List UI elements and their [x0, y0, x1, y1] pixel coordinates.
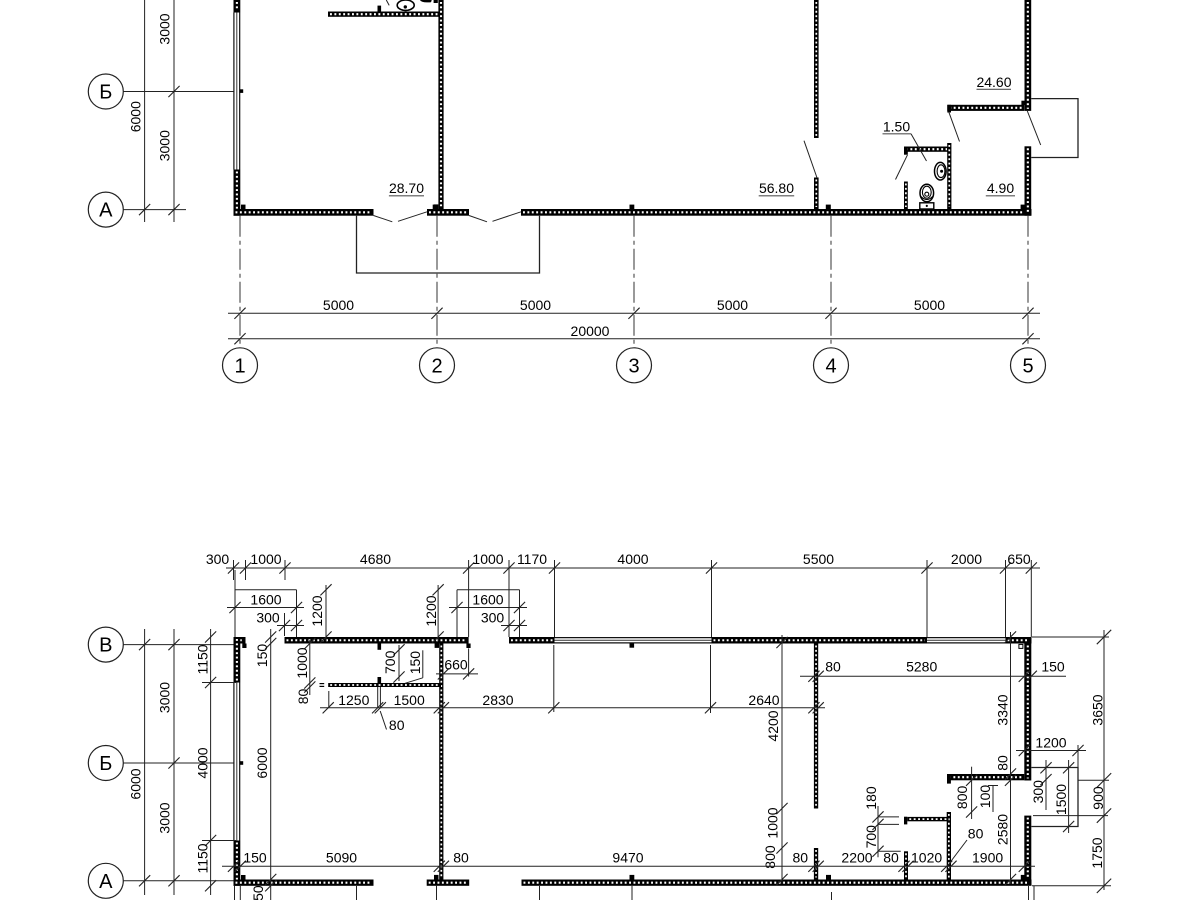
- svg-text:3: 3: [628, 355, 639, 377]
- svg-text:1600: 1600: [472, 592, 503, 608]
- svg-text:4.90: 4.90: [987, 180, 1014, 196]
- svg-text:1000: 1000: [294, 647, 310, 678]
- svg-text:1200: 1200: [309, 595, 325, 626]
- svg-text:2000: 2000: [951, 551, 982, 567]
- svg-text:180: 180: [863, 786, 879, 810]
- svg-text:5090: 5090: [326, 850, 357, 866]
- svg-text:4200: 4200: [765, 710, 781, 741]
- svg-text:1150: 1150: [195, 843, 211, 873]
- svg-text:9470: 9470: [612, 850, 643, 866]
- svg-text:80: 80: [793, 850, 809, 866]
- svg-text:300: 300: [206, 551, 230, 567]
- svg-text:1500: 1500: [1053, 784, 1069, 815]
- svg-text:6000: 6000: [128, 768, 144, 799]
- svg-text:1250: 1250: [338, 692, 369, 708]
- svg-text:300: 300: [481, 610, 505, 626]
- svg-text:150: 150: [243, 850, 267, 866]
- svg-text:300: 300: [1030, 780, 1046, 804]
- svg-text:1600: 1600: [250, 592, 281, 608]
- svg-text:1150: 1150: [195, 644, 211, 674]
- svg-text:1170: 1170: [517, 551, 547, 567]
- svg-text:5500: 5500: [803, 551, 834, 567]
- svg-text:100: 100: [977, 785, 993, 809]
- svg-text:1: 1: [234, 355, 245, 377]
- svg-text:2830: 2830: [482, 692, 513, 708]
- svg-text:650: 650: [1007, 551, 1031, 567]
- svg-text:4680: 4680: [360, 551, 391, 567]
- svg-text:5280: 5280: [906, 659, 937, 675]
- svg-text:3650: 3650: [1089, 694, 1105, 725]
- svg-text:1.50: 1.50: [883, 118, 910, 134]
- svg-text:300: 300: [256, 610, 280, 626]
- svg-text:1500: 1500: [394, 692, 425, 708]
- svg-text:1000: 1000: [250, 551, 281, 567]
- svg-text:1200: 1200: [1035, 735, 1066, 751]
- svg-text:А: А: [99, 200, 113, 222]
- svg-text:1900: 1900: [972, 850, 1003, 866]
- svg-text:А: А: [99, 871, 113, 893]
- svg-text:1020: 1020: [911, 850, 942, 866]
- svg-text:1000: 1000: [472, 551, 503, 567]
- svg-text:5: 5: [1022, 355, 1033, 377]
- svg-text:20000: 20000: [571, 323, 610, 339]
- svg-text:Б: Б: [99, 82, 112, 104]
- svg-text:1750: 1750: [1089, 837, 1105, 868]
- svg-text:5000: 5000: [717, 297, 748, 313]
- svg-text:150: 150: [254, 644, 270, 668]
- svg-text:80: 80: [883, 850, 899, 866]
- svg-text:150: 150: [407, 651, 423, 675]
- svg-text:Б: Б: [99, 753, 112, 775]
- svg-text:1200: 1200: [423, 595, 439, 626]
- svg-text:150: 150: [250, 885, 266, 900]
- svg-text:80: 80: [968, 826, 984, 842]
- svg-text:4: 4: [825, 355, 836, 377]
- svg-text:900: 900: [1090, 786, 1106, 810]
- svg-text:150: 150: [1041, 659, 1065, 675]
- svg-text:660: 660: [444, 657, 468, 673]
- svg-text:2640: 2640: [748, 692, 779, 708]
- svg-text:2200: 2200: [841, 850, 872, 866]
- svg-text:800: 800: [954, 786, 970, 810]
- svg-text:80: 80: [453, 850, 469, 866]
- svg-text:3000: 3000: [157, 130, 173, 161]
- svg-text:2: 2: [431, 355, 442, 377]
- svg-text:4000: 4000: [617, 551, 648, 567]
- svg-text:80: 80: [295, 689, 311, 705]
- svg-text:24.60: 24.60: [976, 74, 1011, 90]
- svg-text:56.80: 56.80: [759, 180, 794, 196]
- svg-text:3000: 3000: [157, 802, 173, 833]
- svg-text:В: В: [99, 635, 112, 657]
- svg-text:80: 80: [825, 659, 841, 675]
- svg-text:3000: 3000: [157, 13, 173, 44]
- svg-text:700: 700: [382, 650, 398, 674]
- svg-text:5000: 5000: [323, 297, 354, 313]
- svg-text:80: 80: [995, 755, 1011, 771]
- svg-text:2580: 2580: [995, 814, 1011, 845]
- svg-text:3340: 3340: [995, 694, 1011, 725]
- svg-text:700: 700: [863, 825, 879, 849]
- svg-text:6000: 6000: [254, 747, 270, 778]
- svg-text:800: 800: [762, 845, 778, 869]
- svg-text:80: 80: [389, 717, 405, 733]
- svg-text:4000: 4000: [195, 747, 211, 778]
- svg-text:1000: 1000: [765, 807, 781, 838]
- svg-text:5000: 5000: [520, 297, 551, 313]
- svg-text:3000: 3000: [157, 682, 173, 713]
- svg-text:28.70: 28.70: [389, 180, 424, 196]
- svg-text:6000: 6000: [128, 101, 144, 132]
- svg-text:5000: 5000: [914, 297, 945, 313]
